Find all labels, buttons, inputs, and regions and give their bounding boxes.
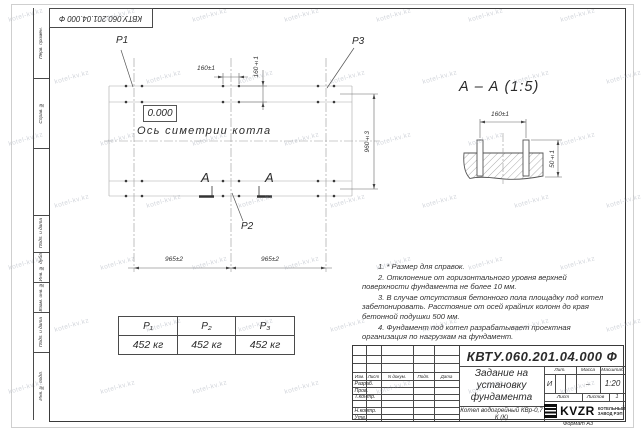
dim-section-height: 50±1 <box>548 146 557 172</box>
sheets-value: 1 <box>609 393 625 401</box>
divider-line <box>353 387 459 388</box>
product-name: Котел водогрейный КВр-0,7 К (К) <box>459 406 544 421</box>
axis-of-symmetry-label: Ось симетрии котла <box>137 125 271 137</box>
plan-view <box>104 48 380 272</box>
elevation-value: 0.000 <box>147 108 172 119</box>
load-point-label-p2: P2 <box>241 221 253 232</box>
role-nkontr: Н.контр. <box>355 408 377 414</box>
column-header-list: Лист <box>366 372 381 380</box>
column-header-data: Дата <box>434 372 459 380</box>
title-block: Изм. Лист N докум. Подп. Дата Разраб. Пр… <box>352 345 624 420</box>
lit-label: Лит. <box>544 366 576 374</box>
kvzr-logo-text: KVZR <box>560 404 595 418</box>
divider-line <box>434 346 435 421</box>
company-logo: KVZR КОТЕЛЬНЫЙ ЗАВОД РЭП <box>544 401 625 421</box>
section-letter-right: А <box>265 170 274 185</box>
note-2: 2. Отклонение от горизонтального уровня … <box>362 273 612 292</box>
divider-line <box>413 346 414 421</box>
scale-label: Масштаб <box>600 366 625 374</box>
dim-column-span-left: 965±2 <box>165 256 183 263</box>
column-header-podp: Подп. <box>413 372 434 380</box>
divider-line <box>565 374 566 393</box>
document-number: КВТУ.060.201.04.000 Ф <box>459 346 625 366</box>
load-table-header: Р₁ <box>119 317 178 336</box>
column-header-doc: N докум. <box>381 372 413 380</box>
dim-column-span-right: 965±2 <box>261 256 279 263</box>
role-utv: Утв. <box>355 415 367 421</box>
dim-bolt-spacing-v: 160±1 <box>252 55 261 78</box>
load-table-value: 452 кг <box>119 336 178 354</box>
load-table: Р₁ Р₂ Р₃ 452 кг 452 кг 452 кг <box>118 316 295 355</box>
elevation-mark: 0.000 <box>143 105 177 122</box>
divider-line <box>353 400 459 401</box>
section-cut-marks <box>199 186 272 197</box>
notes-block: 1. * Размер для справок. 2. Отклонение о… <box>362 262 612 343</box>
role-tkontr: Т.контр. <box>355 394 376 400</box>
dim-row-spacing: 960±3 <box>363 126 372 158</box>
section-title: А – А (1:5) <box>459 79 539 95</box>
sheets-label: Листов <box>582 393 609 401</box>
sheet-label: Лист <box>544 393 582 401</box>
kvzr-logo-icon <box>544 404 557 418</box>
scale-value: 1:20 <box>600 374 625 393</box>
load-table-value: 452 кг <box>178 336 236 354</box>
lit-value: И <box>544 374 555 393</box>
mass-label: Масса <box>576 366 600 374</box>
divider-line <box>353 363 459 364</box>
divider-line <box>555 374 556 393</box>
column-header-izm: Изм. <box>353 372 366 380</box>
dim-bolt-spacing-h: 160±1 <box>197 65 215 72</box>
load-table-value: 452 кг <box>236 336 294 354</box>
note-3: 3. В случае отсутствия бетонного пола пл… <box>362 293 612 322</box>
kvzr-logo-subtext: КОТЕЛЬНЫЙ ЗАВОД РЭП <box>598 406 625 416</box>
load-table-header: Р₂ <box>178 317 236 336</box>
note-4: 4. Фундамент под котел разрабатывает про… <box>362 323 612 342</box>
divider-line <box>353 355 459 356</box>
role-razrab: Разраб. <box>355 381 374 387</box>
drawing-title: Задание на установку фундамента <box>459 366 544 406</box>
divider-line <box>381 346 382 421</box>
mass-value: – <box>576 374 600 393</box>
note-1: 1. * Размер для справок. <box>362 262 612 272</box>
drawing-sheet: Перв. примен. Справ. № Подп. и дата Инв.… <box>0 0 644 430</box>
dim-section-bolts: 160±1 <box>491 111 509 118</box>
kvzr-logo-sub2: ЗАВОД РЭП <box>598 411 625 416</box>
format-label: Формат А3 <box>563 421 593 427</box>
load-point-label-p3: P3 <box>352 36 364 47</box>
divider-line <box>353 414 459 415</box>
section-letter-left: А <box>201 170 210 185</box>
load-table-header: Р₃ <box>236 317 294 336</box>
role-prov: Пров. <box>355 388 369 394</box>
load-point-label-p1: P1 <box>116 35 128 46</box>
